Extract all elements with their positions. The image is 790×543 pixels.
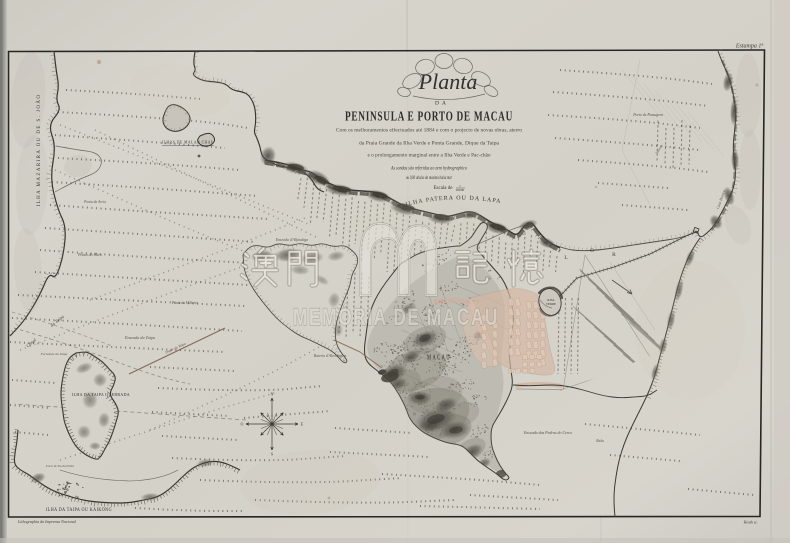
svg-text:Ponta do Milheiro: Ponta do Milheiro: [171, 301, 199, 305]
svg-text:Estampa 1ª: Estampa 1ª: [735, 44, 764, 50]
svg-text:As sondas são referidas ao zer: As sondas são referidas ao zero hydrogra…: [390, 167, 467, 172]
svg-text:ILHAS DE MALAU CHAU: ILHAS DE MALAU CHAU: [162, 140, 214, 145]
svg-text:MACAU: MACAU: [427, 353, 451, 362]
svg-text:MEMÓRIA DE MACAU: MEMÓRIA DE MACAU: [293, 303, 499, 331]
svg-text:Forte de Sta da Pedra: Forte de Sta da Pedra: [45, 464, 75, 468]
svg-text:Enseada das Pedras do Cerco: Enseada das Pedras do Cerco: [523, 430, 572, 435]
svg-text:R: R: [612, 252, 616, 258]
svg-text:S: S: [271, 451, 273, 456]
svg-text:20000: 20000: [456, 188, 465, 192]
svg-text:Ponta da Areia: Ponta da Areia: [83, 200, 106, 204]
svg-text:O: O: [590, 248, 594, 254]
svg-text:O: O: [241, 421, 244, 426]
svg-text:N: N: [271, 391, 274, 396]
svg-text:e o prolongamento marginal ent: e o prolongamento marginal entre a Ilha …: [368, 154, 492, 159]
svg-text:Planta: Planta: [418, 69, 478, 94]
svg-text:Ponta do Mico: Ponta do Mico: [77, 252, 102, 257]
svg-text:Rada: Rada: [595, 439, 604, 443]
svg-text:Porto de Passagem: Porto de Passagem: [632, 113, 663, 117]
svg-text:Enseada d'Alfandega: Enseada d'Alfandega: [275, 238, 308, 242]
svg-text:PENINSULA E PORTO DE MACAU: PENINSULA E PORTO DE MACAU: [345, 109, 513, 124]
svg-text:ILHA DA TAIPA OU KAIKONG: ILHA DA TAIPA OU KAIKONG: [46, 508, 112, 513]
svg-text:Bateria d'Abordagem: Bateria d'Abordagem: [314, 354, 347, 358]
svg-text:Lithographia da Imprensa Nacio: Lithographia da Imprensa Nacional: [17, 519, 77, 524]
svg-text:Com os melhoramentos effectuad: Com os melhoramentos effectuados até 188…: [336, 129, 523, 134]
svg-text:D A: D A: [435, 101, 447, 107]
svg-text:ILHA MAZARIRA OU DE S. JOÃO: ILHA MAZARIRA OU DE S. JOÃO: [36, 94, 42, 207]
svg-text:VERDE: VERDE: [546, 302, 556, 306]
svg-text:ILHA DA TAIPA QUEBRADA: ILHA DA TAIPA QUEBRADA: [72, 392, 130, 397]
svg-text:ou 0,00 abaixo da maxima baixa: ou 0,00 abaixo da maxima baixa mar: [406, 176, 452, 181]
svg-text:Heath sc.: Heath sc.: [743, 521, 758, 525]
svg-text:Escala de: Escala de: [433, 186, 453, 191]
svg-text:da Praia Grande da Ilha Verde: da Praia Grande da Ilha Verde e Ponta Gr…: [359, 142, 500, 147]
svg-text:Enseada da Taipa: Enseada da Taipa: [124, 335, 155, 340]
svg-text:Fortaleza da Taipa: Fortaleza da Taipa: [40, 352, 68, 356]
